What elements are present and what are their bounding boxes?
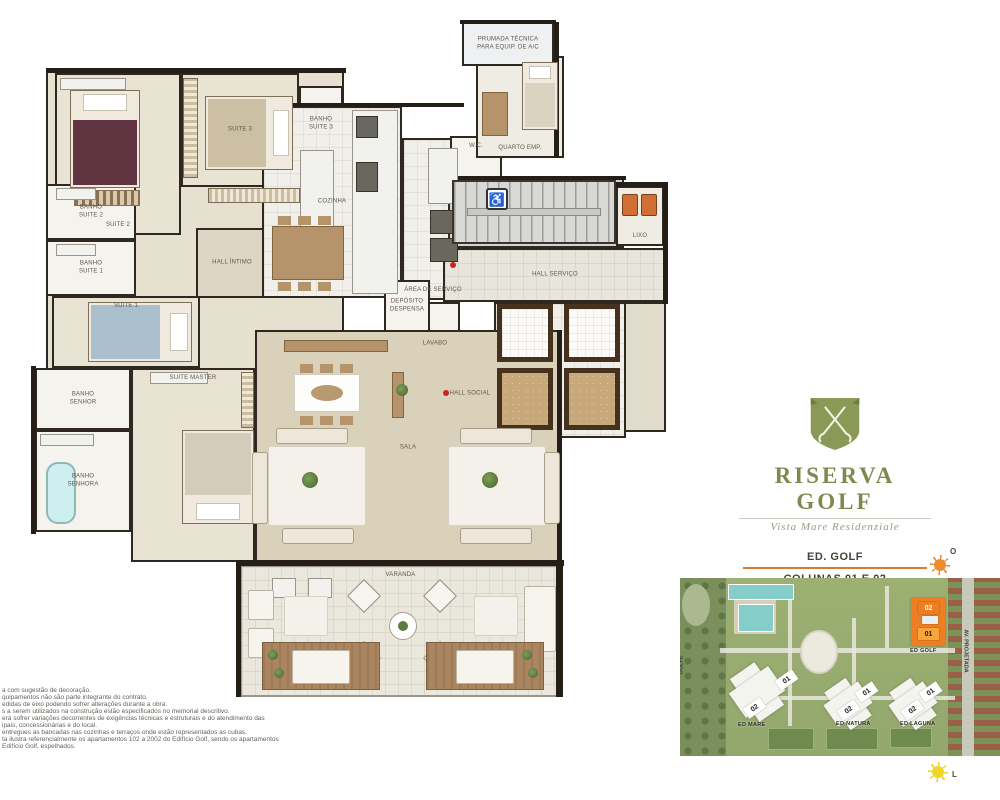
golf-green [682, 584, 710, 626]
room-label: DEPÓSITO DESPENSA [386, 299, 428, 314]
plant-furniture [302, 472, 318, 488]
bed-furniture [522, 62, 558, 130]
room-label: HALL SERVIÇO [445, 271, 665, 279]
wall [556, 560, 563, 697]
street-label-golfe: GOLFE [680, 656, 684, 675]
rug-white-furniture [474, 596, 518, 636]
table-white-furniture [294, 374, 360, 412]
compass-west-letter: O [950, 547, 956, 556]
chairs-h-furniture [278, 282, 338, 291]
room-label: LIXO [618, 233, 662, 241]
lap-pool [728, 584, 794, 600]
rug-white-furniture [448, 446, 546, 526]
avenue-tree-band [948, 578, 1000, 756]
map-building-name: ED MARE [738, 722, 765, 728]
sports-court [890, 728, 932, 748]
divider [739, 518, 931, 519]
wall [557, 330, 562, 565]
room-prumada: PRUMADA TÉCNICA PARA EQUIP. DE A/C [462, 22, 554, 66]
plant-furniture [528, 668, 538, 678]
counter-furniture [150, 372, 208, 384]
orange-divider [743, 567, 927, 569]
sofa-furniture [460, 528, 532, 544]
rug-white-furniture [268, 446, 366, 526]
bed-furniture [70, 90, 140, 188]
room-hall-servico: HALL SERVIÇO [443, 248, 667, 302]
room-hall-vizinho [620, 302, 666, 432]
building-name: ED. GOLF [735, 551, 935, 563]
access-furniture: ♿ [486, 188, 508, 210]
sofa-furniture [276, 428, 348, 444]
fine-print-line: Edifício Golf, espelhados. [2, 743, 342, 750]
chairs-h-furniture [300, 364, 358, 373]
counter-furniture [60, 78, 126, 90]
room-label: BANHO SUITE 2 [48, 205, 134, 220]
room-label: HALL ÍNTIMO [198, 259, 266, 267]
plant-furniture [396, 384, 408, 396]
wall [663, 184, 668, 304]
wall [236, 560, 241, 697]
room-label: BANHO SUITE 1 [48, 261, 134, 276]
daybed-furniture [248, 590, 274, 620]
counter-furniture [40, 434, 94, 446]
sports-court [826, 728, 878, 750]
daybed-furniture [456, 650, 514, 684]
counter-furniture [56, 244, 96, 256]
daybed-furniture [292, 650, 350, 684]
fine-print-line: quipamentos não são parte integrante do … [2, 694, 342, 701]
map-unit-label [922, 616, 938, 624]
central-plaza [800, 630, 838, 674]
golf-shield-icon [809, 396, 861, 457]
fine-print-line: ipais, concessionárias e do local. [2, 722, 342, 729]
sideboard-furniture [284, 340, 388, 352]
plant-furniture [522, 650, 532, 660]
sofa-furniture [282, 528, 354, 544]
bed-furniture [88, 302, 192, 362]
room-hall-intimo: HALL ÍNTIMO [196, 228, 268, 298]
room-label: QUARTO EMP. [478, 145, 562, 153]
tub-furniture [46, 462, 76, 524]
rug-white-furniture [284, 596, 328, 636]
leisure-pool [738, 604, 774, 632]
fine-print: a com sugestão de decoração.quipamentos … [2, 687, 342, 750]
brand-name: RISERVA GOLF [735, 463, 935, 515]
appliance-furniture [356, 116, 378, 138]
table-wood-furniture [482, 92, 508, 136]
sofa-furniture [544, 452, 560, 524]
stairs-furniture [452, 180, 616, 244]
map-unit-label: 01 [774, 669, 798, 691]
fine-print-line: erá sofrer variações decorrentes de exig… [2, 715, 342, 722]
sofa-furniture [252, 452, 268, 524]
counter-furniture [272, 578, 296, 598]
ward-v-furniture [241, 372, 254, 428]
counter-furniture [308, 578, 332, 598]
plant-furniture [274, 668, 284, 678]
room-label: BANHO SENHOR [37, 392, 129, 407]
wall [616, 182, 668, 187]
fine-print-line: ta ilustra referencialmente os apartamen… [2, 736, 342, 743]
circle-furniture [389, 612, 417, 640]
street-label-av-projetada: AV. PROJETADA [963, 629, 969, 672]
map-unit-label: 01 [918, 628, 939, 640]
bed-furniture [182, 430, 254, 524]
site-map: GOLFE AV. PROJETADA 0102ED MARE0102ED NA… [680, 578, 1000, 756]
room-label: PRUMADA TÉCNICA PARA EQUIP. DE A/C [464, 37, 552, 52]
chairs-h-furniture [300, 416, 358, 425]
dot-furniture [450, 262, 456, 268]
counter-furniture [56, 188, 96, 200]
map-building-name: ED GOLF [910, 648, 937, 654]
ward-h-furniture [208, 188, 300, 203]
brand-tagline: Vista Mare Residenziale [735, 521, 935, 533]
elev-l-furniture [497, 304, 553, 362]
room-banho-senhor: BANHO SENHOR [35, 368, 131, 430]
plant-furniture [268, 650, 278, 660]
plant-furniture [482, 472, 498, 488]
map-building-name: ED LAGUNA [900, 721, 935, 727]
floor-plan: SUITE 2SUITE 3BANHO SUITE 3BANHO SUITE 2… [0, 0, 680, 710]
map-building-name: ED NATURA [836, 721, 871, 727]
map-unit-label: 02 [918, 602, 939, 614]
chairs-h-furniture [278, 216, 338, 225]
wall [31, 366, 36, 534]
wall [238, 560, 564, 566]
table-wood-furniture [272, 226, 344, 280]
fine-print-line: edidas de eixo podendo sofrer alterações… [2, 701, 342, 708]
wall [460, 20, 556, 24]
elev-l-furniture [564, 304, 620, 362]
brochure-page: SUITE 2SUITE 3BANHO SUITE 3BANHO SUITE 2… [0, 0, 1000, 800]
appliance-furniture [356, 162, 378, 192]
elev-d-furniture [497, 368, 553, 430]
ward-v-furniture [183, 78, 198, 178]
fine-print-line: entregues as bancadas nas cozinhas e ter… [2, 729, 342, 736]
path [788, 586, 792, 726]
bed-furniture [205, 96, 293, 170]
sun-west-icon: O [930, 555, 950, 575]
fine-print-line: s a serem utilizados na construção estão… [2, 708, 342, 715]
bin-furniture [622, 194, 638, 216]
bin-furniture [641, 194, 657, 216]
wall [46, 68, 346, 73]
compass-east-letter: L [952, 770, 957, 779]
elev-d-furniture [564, 368, 620, 430]
sofa-furniture [460, 428, 532, 444]
sun-east-icon: L [928, 762, 948, 782]
dot-furniture [443, 390, 449, 396]
sports-court [768, 728, 814, 750]
path [885, 586, 889, 648]
